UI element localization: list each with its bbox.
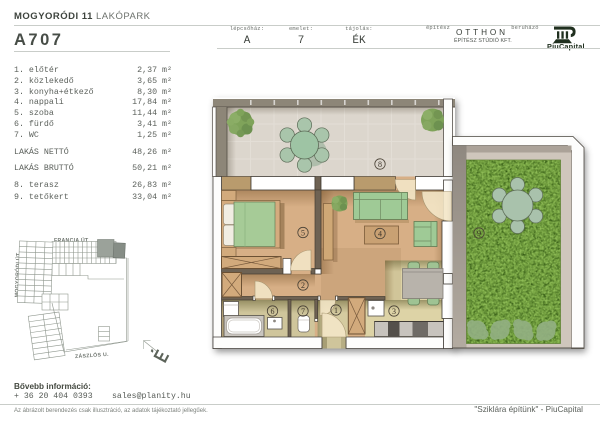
svg-text:6: 6 xyxy=(271,307,275,316)
svg-text:5: 5 xyxy=(301,228,305,237)
svg-text:2: 2 xyxy=(301,281,305,290)
svg-text:9: 9 xyxy=(477,229,481,238)
svg-text:1: 1 xyxy=(334,306,338,315)
svg-text:8: 8 xyxy=(378,160,382,169)
svg-text:4: 4 xyxy=(378,229,382,238)
svg-text:7: 7 xyxy=(301,307,305,316)
svg-text:3: 3 xyxy=(392,307,396,316)
